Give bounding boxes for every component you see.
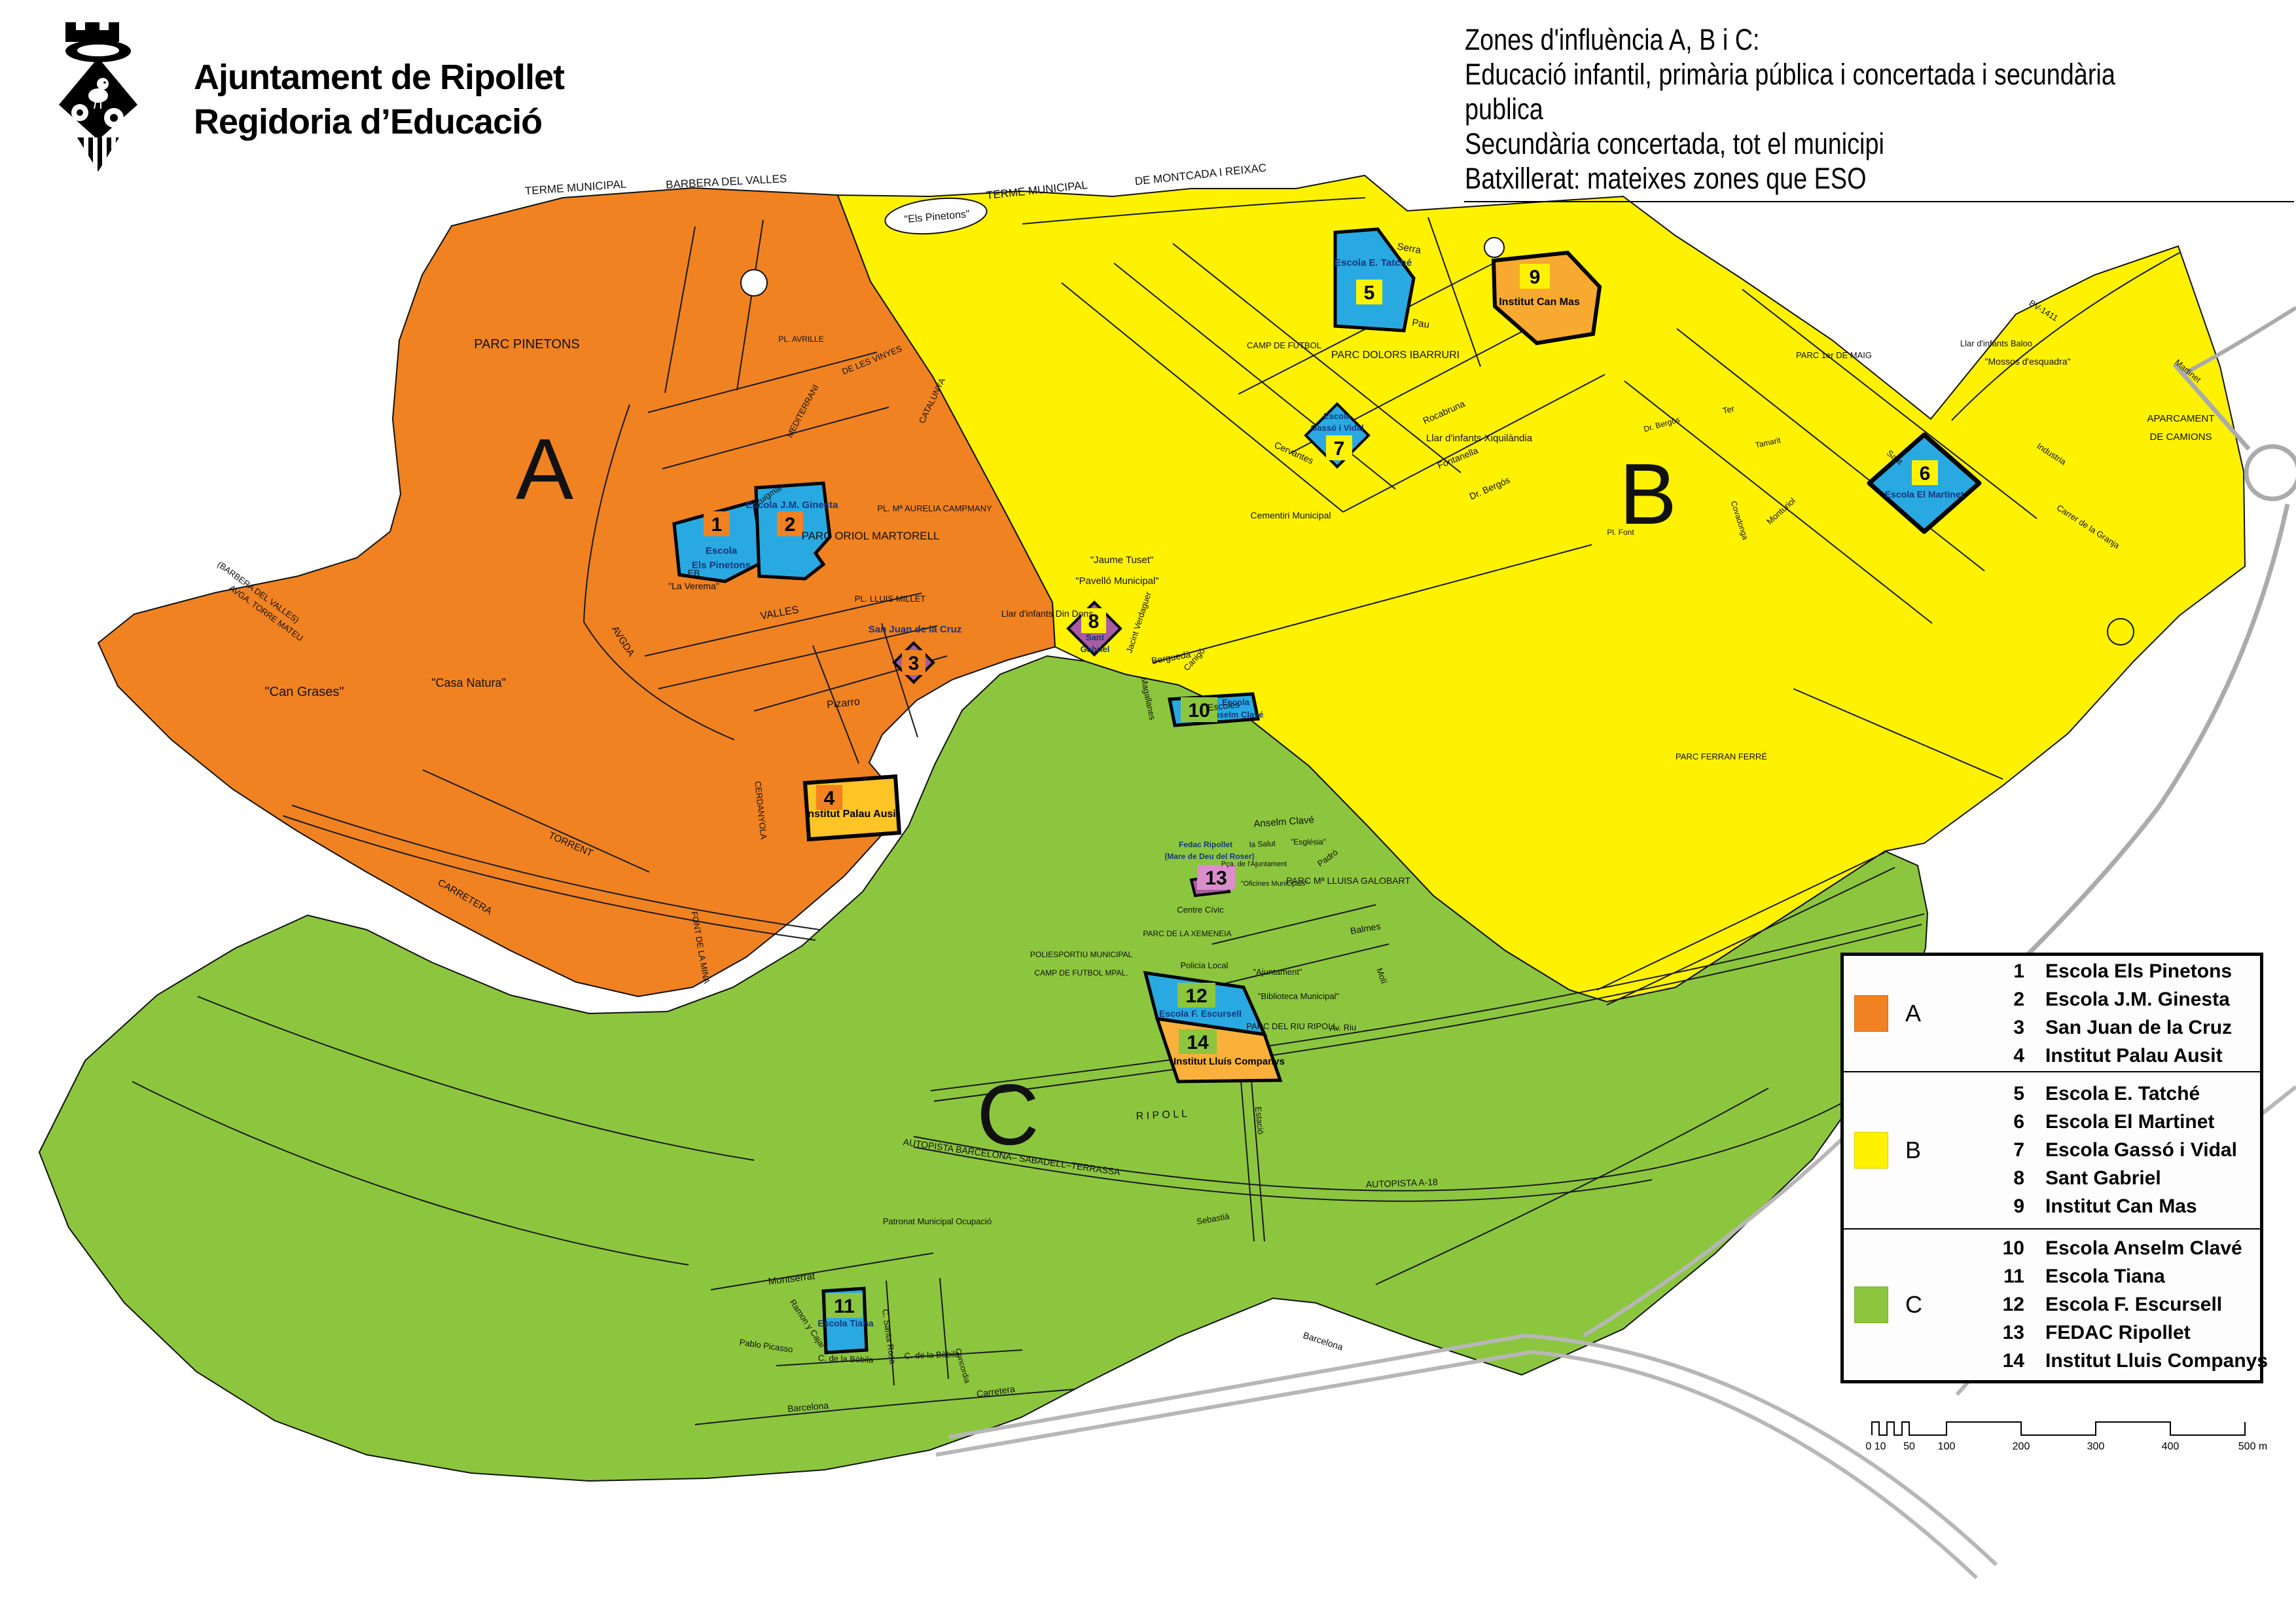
- org-name: Ajuntament de Ripollet: [194, 55, 564, 100]
- legend-item: 14Institut Lluis Companys: [1979, 1351, 2268, 1372]
- map-label: PL. LLUIS MILLET: [855, 594, 925, 604]
- map-label: C. de la Bòbila: [818, 1353, 874, 1365]
- school-name-label: Gabriel: [1081, 644, 1110, 654]
- school-name-label: Escola: [706, 545, 738, 556]
- map-label: Llar d'infants Baloo: [1960, 338, 2032, 348]
- school-name-label: Sant: [1086, 632, 1105, 642]
- school-name-label: Institut Can Mas: [1499, 297, 1580, 308]
- scale-label: 100: [1938, 1441, 1956, 1452]
- school-number: 13: [1205, 867, 1227, 889]
- school-number: 7: [1334, 438, 1345, 460]
- crown-icon: [65, 22, 119, 42]
- school-marker-4: Institut Palau Ausit4: [805, 776, 900, 839]
- org-title-block: Ajuntament de Ripollet Regidoria d’Educa…: [194, 55, 564, 144]
- legend-item: 6Escola El Martinet: [1979, 1112, 2237, 1133]
- map-decoration: [2246, 447, 2296, 499]
- map-label: PARC DOLORS IBARRURI: [1331, 350, 1460, 361]
- school-number: 4: [824, 788, 835, 809]
- school-name-label: Escola: [1323, 411, 1352, 421]
- school-name-label: Escola El Martinet: [1885, 489, 1964, 500]
- zone-c-letter: C: [1905, 1291, 1922, 1319]
- legend-section-b: B 5Escola E. Tatché 6Escola El Martinet …: [1844, 1071, 2260, 1228]
- scale-label: 200: [2013, 1441, 2030, 1452]
- school-number: 14: [1187, 1032, 1209, 1053]
- scale-bar-line: [1872, 1422, 2245, 1435]
- map-label: PARC 1er DE MAIG: [1796, 350, 1872, 360]
- zone-a-letter: A: [1905, 1000, 1921, 1027]
- map-label: "Pavelló Municipal": [1075, 575, 1158, 587]
- school-name-label: Fedac Ripollet: [1179, 840, 1232, 849]
- legend-item: 3San Juan de la Cruz: [1979, 1017, 2232, 1038]
- map-label: DE CAMIONS: [2149, 431, 2212, 443]
- map-label: C. de la Bòbila: [904, 1349, 960, 1361]
- legend-item: 10Escola Anselm Clavé: [1979, 1238, 2268, 1259]
- map-label: PL. Mª AURELIA CAMPMANY: [877, 503, 992, 513]
- zone-a-swatch: [1854, 995, 1888, 1032]
- map-label: EB: [688, 568, 700, 578]
- map-label: BARBERA DEL VALLES: [666, 172, 787, 191]
- map-label: APARCAMENT: [2147, 413, 2214, 424]
- map-legend: A 1Escola Els Pinetons 2Escola J.M. Gine…: [1840, 953, 2263, 1383]
- school-name-label: Escola F. Escursell: [1159, 1008, 1242, 1019]
- school-name-label: Gassó i Vidal: [1310, 423, 1363, 433]
- map-label: PARC PINETONS: [474, 337, 580, 352]
- school-number: 12: [1185, 985, 1207, 1007]
- map-label: PARC DEL RIU RIPOLL: [1246, 1021, 1337, 1031]
- map-label: "Ajuntament": [1253, 967, 1302, 977]
- school-name-label: Escola Tiana: [817, 1318, 874, 1328]
- chick-icon: [97, 78, 109, 90]
- legend-item: 4Institut Palau Ausit: [1979, 1046, 2232, 1067]
- school-name-label: Institut Lluís Companys: [1174, 1056, 1285, 1067]
- zone-letter-a: A: [516, 421, 573, 517]
- legend-item: 9Institut Can Mas: [1979, 1196, 2237, 1217]
- legend-section-a: A 1Escola Els Pinetons 2Escola J.M. Gine…: [1844, 956, 2260, 1071]
- title-line: Secundària concertada, tot el municipi: [1465, 126, 2115, 161]
- map-label: Pl. Font: [1607, 528, 1634, 537]
- school-number: 5: [1364, 282, 1375, 304]
- map-label: PL. AVRILLE: [778, 335, 823, 344]
- school-number: 3: [908, 653, 920, 674]
- map-label: Centre Cívic: [1177, 905, 1224, 915]
- org-dept: Regidoria d’Educació: [194, 100, 564, 144]
- map-label: Policia Local: [1181, 960, 1229, 970]
- scale-label: 50: [1903, 1441, 1915, 1452]
- school-number: 11: [834, 1296, 855, 1317]
- school-name-label: San Juan de la Cruz: [869, 624, 962, 635]
- legend-item: 11Escola Tiana: [1979, 1266, 2268, 1287]
- map-label: Cementiri Municipal: [1251, 510, 1331, 520]
- map-label: "Biblioteca Municipal": [1258, 991, 1340, 1001]
- legend-item: 13FEDAC Ripollet: [1979, 1322, 2268, 1343]
- school-name-label: Escola E. Tatché: [1335, 257, 1412, 268]
- title-line: Zones d'influència A, B i C:: [1465, 22, 2115, 57]
- school-name-label: (Mare de Deu del Roser): [1164, 852, 1254, 861]
- map-label: Llar d'infants Din Dons: [1001, 608, 1093, 619]
- map-label: Barcelona: [1302, 1330, 1344, 1353]
- map-label: "Casa Natura": [431, 676, 506, 689]
- scale-bar: 0 10 50 100 200 300 400 500 m: [1865, 1422, 2267, 1452]
- school-name-label: Els Pinetons: [692, 560, 751, 571]
- street-line: [1532, 1352, 1977, 1578]
- map-label: PARC ORIOL MARTORELL: [802, 530, 940, 542]
- title-line: publica: [1465, 92, 2115, 126]
- map-label: Pça. de l'Ajuntament: [1221, 860, 1287, 868]
- legend-item: 2Escola J.M. Ginesta: [1979, 989, 2232, 1010]
- zone-b-swatch: [1854, 1132, 1888, 1169]
- legend-item: 8Sant Gabriel: [1979, 1168, 2237, 1189]
- map-label: "La Verema": [668, 581, 719, 591]
- city-crest-logo: [39, 16, 160, 179]
- map-label: CAMP DE FUTBOL MPAL.: [1034, 968, 1128, 977]
- map-label: PARC FERRAN FERRÉ: [1676, 752, 1767, 761]
- map-label: "Jaume Tuset": [1090, 555, 1154, 566]
- map-label: Patronat Municipal Ocupació: [883, 1216, 992, 1226]
- title-line: Educació infantil, primària pública i co…: [1465, 57, 2115, 92]
- map-decoration: [741, 270, 767, 296]
- map-label: POLIESPORTIU MUNICIPAL: [1030, 950, 1133, 959]
- scale-label: 500 m: [2238, 1441, 2267, 1452]
- legend-item: 5Escola E. Tatché: [1979, 1084, 2237, 1104]
- scale-label: 400: [2162, 1441, 2179, 1452]
- map-decoration: [1484, 238, 1504, 257]
- school-number: 2: [785, 514, 796, 536]
- scale-label: 300: [2087, 1441, 2105, 1452]
- school-name-label: Institut Palau Ausit: [805, 809, 900, 820]
- map-label: Av. Riu: [1329, 1022, 1356, 1032]
- school-number: 1: [711, 514, 723, 536]
- legend-section-c: C 10Escola Anselm Clavé 11Escola Tiana 1…: [1844, 1228, 2260, 1380]
- school-number: 9: [1530, 266, 1541, 288]
- map-label: "Can Grases": [265, 685, 344, 699]
- zone-c-swatch: [1854, 1286, 1888, 1323]
- map-title: Zones d'influència A, B i C: Educació in…: [1465, 22, 2115, 196]
- zone-b-letter: B: [1905, 1137, 1921, 1164]
- map-label: la Salut: [1249, 839, 1276, 849]
- map-document: ABC EscolaEls Pinetons1Escola J.M. Gines…: [0, 0, 2296, 1623]
- legend-item: 1Escola Els Pinetons: [1979, 961, 2232, 982]
- map-label: PARC DE LA XEMENEIA: [1143, 929, 1231, 938]
- map-label: CAMP DE FUTBOL: [1247, 340, 1321, 350]
- school-number: 6: [1920, 463, 1931, 484]
- map-label: "Mossos d'esquadra": [1985, 356, 2071, 367]
- title-line: Batxillerat: mateixes zones que ESO: [1465, 161, 2115, 196]
- map-label: PARC Mª LLUISA GALOBART: [1286, 875, 1410, 886]
- map-label: DE MONTCADA I REIXAC: [1134, 162, 1267, 188]
- scale-label: 0 10: [1865, 1441, 1886, 1452]
- legend-item: 12Escola F. Escursell: [1979, 1294, 2268, 1315]
- legend-item: 7Escola Gassó i Vidal: [1979, 1140, 2237, 1161]
- map-label: Llar d'infants Xiquilàndia: [1426, 433, 1533, 444]
- map-label: "Església": [1291, 837, 1326, 847]
